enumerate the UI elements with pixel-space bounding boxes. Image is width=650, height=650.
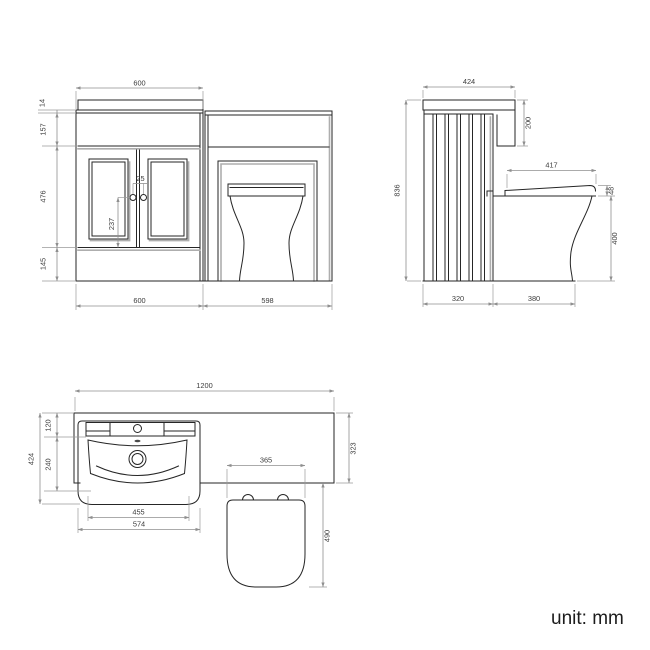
- dim-front-worktop-width: 600: [133, 79, 145, 88]
- overflow-slot: [135, 440, 141, 443]
- toilet-hinge-left: [243, 495, 254, 500]
- bathroom-unit-dimension-drawing: 600 14 157 476 145 25 237 600 598: [0, 0, 650, 650]
- dim-plan-seat-width: 365: [260, 456, 272, 465]
- dim-plan-basin-width: 574: [133, 520, 145, 529]
- dim-plan-bowl-depth: 240: [44, 458, 53, 470]
- front-elevation-view: 600 14 157 476 145 25 237 600 598: [38, 79, 333, 311]
- toilet-side: [487, 186, 596, 282]
- plan-view: 1200 424 120 240 323 365 490 455: [27, 381, 358, 587]
- dim-plan-bowl-width: 455: [132, 508, 144, 517]
- side-cabinet: [424, 110, 493, 281]
- plan-dimensions: 1200 424 120 240 323 365 490 455: [27, 381, 358, 587]
- dim-plan-pan-projection: 490: [323, 530, 332, 542]
- dim-front-worktop-lip: 14: [38, 99, 47, 107]
- plan-toilet: [227, 495, 305, 587]
- dim-side-cabinet-depth: 320: [452, 294, 464, 303]
- side-worktop: [423, 100, 515, 110]
- door-handle-left: [130, 195, 136, 201]
- vanity-worktop: [76, 100, 203, 113]
- door-handle-right: [141, 195, 147, 201]
- basin-outline: [78, 421, 200, 505]
- dim-plan-ledge-depth: 120: [44, 419, 53, 431]
- dim-front-handle-gap: 25: [136, 174, 144, 183]
- toilet-pan-side: [570, 196, 592, 281]
- dim-front-vanity-width: 600: [133, 296, 145, 305]
- toilet-front: [228, 184, 305, 281]
- dim-front-door-height: 476: [39, 190, 48, 202]
- drain-inner: [132, 454, 143, 465]
- wc-recess-frame-shadow: [221, 164, 314, 281]
- dim-front-handle-drop: 237: [107, 218, 116, 230]
- dim-side-pan-height: 400: [610, 232, 619, 244]
- dim-plan-depth: 424: [27, 453, 36, 465]
- dim-front-wc-width: 598: [261, 296, 273, 305]
- dim-plan-width: 1200: [196, 381, 212, 390]
- side-cabinet-panel-lines: [433, 114, 485, 281]
- wc-recess-frame: [218, 161, 317, 281]
- dim-front-fascia-height: 157: [39, 123, 48, 135]
- dim-front-plinth-height: 145: [39, 258, 48, 270]
- dim-side-pan-projection: 380: [528, 294, 540, 303]
- vanity-door-center-stile: [137, 150, 140, 248]
- basin-bowl: [88, 440, 187, 483]
- toilet-seat-front: [228, 184, 305, 196]
- dim-plan-counter-depth: 323: [349, 442, 358, 454]
- dim-side-seat-length: 417: [545, 161, 557, 170]
- side-dimensions: 424 836 200 417 48 400 320 380: [393, 77, 620, 307]
- toilet-pan-front: [230, 196, 303, 281]
- basin-back-ledge: [86, 423, 195, 437]
- dim-side-end-drop: 200: [524, 117, 533, 129]
- tap-hole: [134, 425, 142, 433]
- plan-basin: [78, 421, 200, 505]
- unit-label: unit: mm: [551, 608, 624, 629]
- toilet-seat-side: [493, 186, 596, 197]
- technical-drawing-canvas: 600 14 157 476 145 25 237 600 598: [0, 0, 650, 650]
- vanity-door-right: [148, 159, 189, 241]
- dim-side-height: 836: [393, 184, 402, 196]
- side-end-panel: [497, 110, 515, 146]
- dim-side-top-depth: 424: [463, 77, 475, 86]
- toilet-seat-plan: [227, 500, 305, 587]
- toilet-hinge-right: [278, 495, 289, 500]
- dim-side-seat-thickness: 48: [607, 187, 616, 195]
- side-elevation-view: 424 836 200 417 48 400 320 380: [393, 77, 620, 307]
